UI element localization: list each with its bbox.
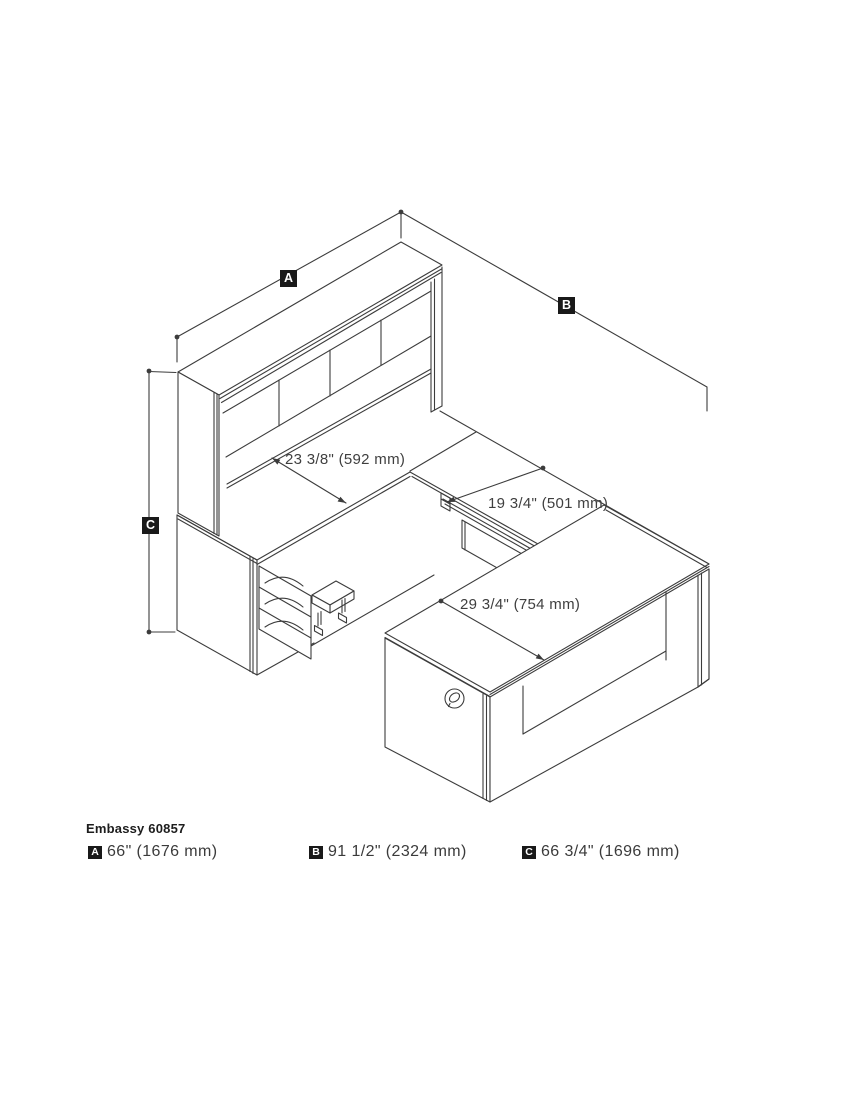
- hutch: [178, 242, 442, 536]
- furniture-line-drawing: [0, 0, 850, 1100]
- pedestal-drawers: [259, 566, 311, 659]
- legend-badge-a: A: [88, 846, 102, 859]
- legend-value-a: 66" (1676 mm): [107, 843, 217, 861]
- legend-value-b: 91 1/2" (2324 mm): [328, 843, 467, 861]
- technical-drawing-page: A B C 23 3/8" (592 mm) 19 3/4" (501 mm) …: [0, 0, 850, 1100]
- callout-c-badge: C: [142, 517, 159, 534]
- legend-item-b: B 91 1/2" (2324 mm): [309, 843, 467, 861]
- legend-badge-c: C: [522, 846, 536, 859]
- callout-a-badge: A: [280, 270, 297, 287]
- mobile-pedestal: [312, 581, 354, 636]
- dimension-credenza-depth: 23 3/8" (592 mm): [285, 451, 405, 468]
- legend-badge-b: B: [309, 846, 323, 859]
- legend-value-c: 66 3/4" (1696 mm): [541, 843, 680, 861]
- legend-item-c: C 66 3/4" (1696 mm): [522, 843, 680, 861]
- dimension-desk-depth: 29 3/4" (754 mm): [460, 596, 580, 613]
- dimension-return-width: 19 3/4" (501 mm): [488, 495, 608, 512]
- product-title: Embassy 60857: [86, 821, 185, 836]
- legend-item-a: A 66" (1676 mm): [88, 843, 217, 861]
- callout-b-badge: B: [558, 297, 575, 314]
- main-desk: [385, 505, 709, 802]
